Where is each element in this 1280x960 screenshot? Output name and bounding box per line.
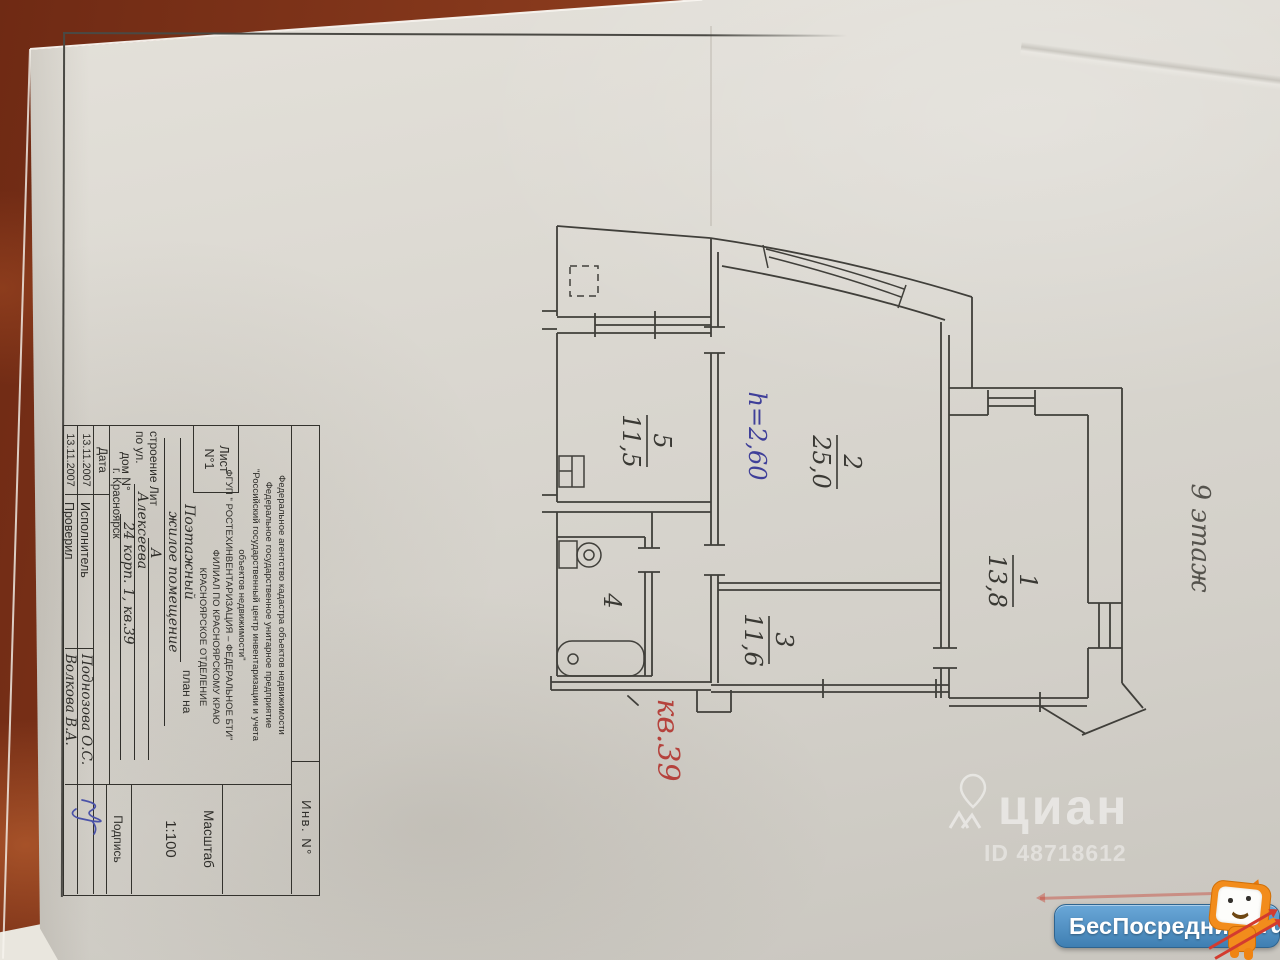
watermark-id: ID 48718612 [984,840,1127,867]
toilet-icon [559,541,601,568]
svg-text:1: 1 [1014,573,1042,588]
room-label-4: 4 [598,592,626,608]
mountain-icon [948,808,982,830]
svg-text:3: 3 [770,632,798,647]
map-pin-icon [958,772,988,810]
ceiling-height-note: h=2,60 [743,391,771,480]
stove-icon [559,456,584,487]
mascot-leg [1244,948,1253,960]
svg-text:25,0: 25,0 [807,434,835,488]
room-label-2: 2 25,0 [807,434,866,489]
curved-wall [710,238,972,320]
apartment-number-note: кв.39 [650,698,685,781]
svg-text:5: 5 [648,433,676,448]
blue-pen-mark [628,696,638,705]
svg-text:4: 4 [598,592,626,608]
watermark-brand: циан [998,778,1129,836]
cian-watermark: циан ID 48718612 [946,770,1176,890]
walls [542,226,1146,735]
svg-text:h=2,60: h=2,60 [743,391,771,480]
floor-note: 9 этаж [1185,483,1215,593]
vent-shaft-dashed [570,266,598,296]
bathtub-icon [557,641,644,676]
mascot-cat-icon [1206,868,1280,960]
room-label-3: 3 11,6 [739,613,798,666]
mascot-eye [1246,896,1251,901]
svg-text:13,8: 13,8 [983,554,1011,607]
svg-text:11,6: 11,6 [739,613,767,666]
svg-text:9 этаж: 9 этаж [1185,483,1215,593]
photo-of-floor-plan-document: Инв. N° Федеральное агентство кадастра о… [0,0,1280,960]
room-label-1: 1 13,8 [983,554,1042,607]
svg-text:11,5: 11,5 [617,414,645,467]
curved-window [763,245,906,308]
room-label-5: 5 11,5 [617,414,676,467]
svg-text:кв.39: кв.39 [650,698,685,781]
svg-text:2: 2 [838,453,866,469]
